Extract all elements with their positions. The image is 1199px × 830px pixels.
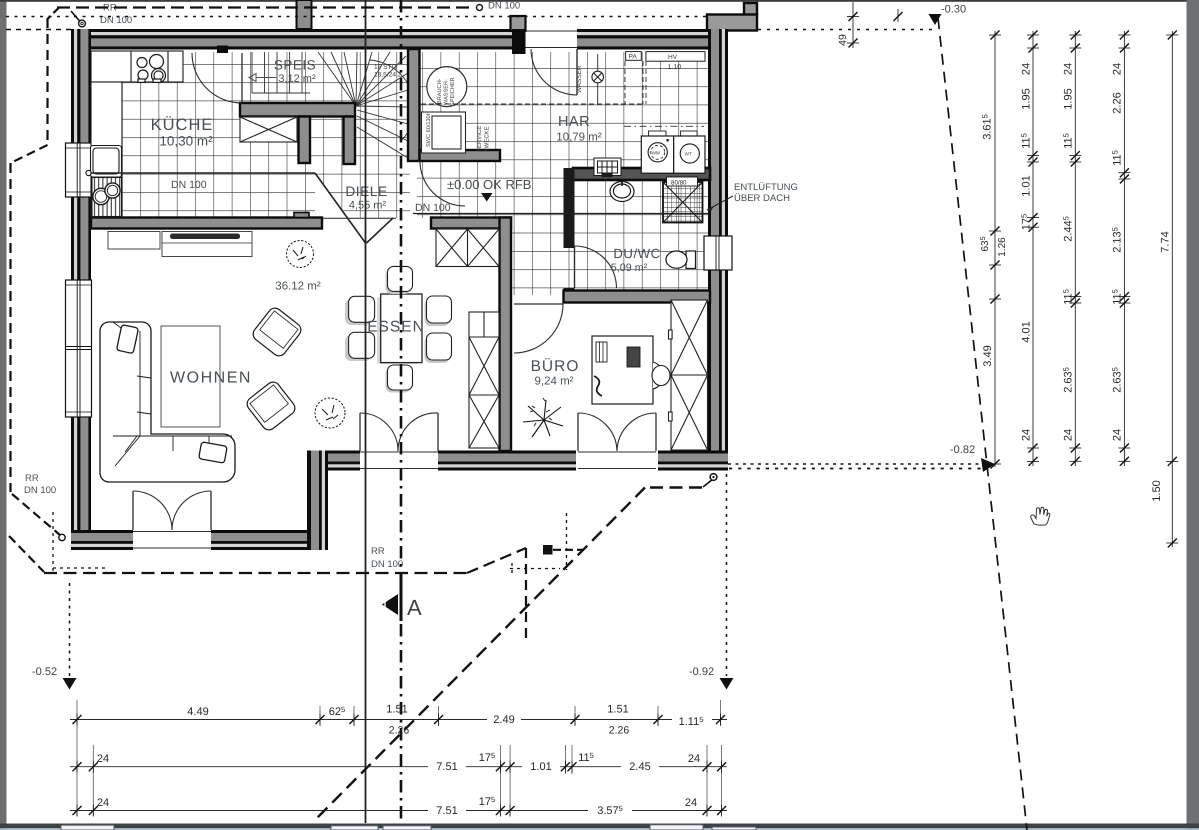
svg-text:1.50: 1.50: [1151, 480, 1163, 501]
svg-text:1.26: 1.26: [997, 237, 1008, 257]
svg-text:2.26: 2.26: [1112, 92, 1124, 113]
svg-text:1.95: 1.95: [1021, 88, 1033, 109]
svg-text:5,09 m²: 5,09 m²: [611, 262, 648, 274]
svg-text:WOHNEN: WOHNEN: [170, 370, 252, 387]
svg-text:WASSER: WASSER: [576, 65, 583, 93]
svg-text:24: 24: [1063, 429, 1075, 441]
svg-text:BÜRO: BÜRO: [531, 358, 580, 375]
svg-text:49: 49: [837, 34, 849, 46]
svg-text:24: 24: [1112, 63, 1124, 75]
svg-text:16 STG: 16 STG: [374, 64, 397, 71]
svg-text:2.26: 2.26: [609, 725, 630, 737]
svg-text:2.49: 2.49: [493, 714, 514, 726]
svg-text:3,12 m²: 3,12 m²: [278, 73, 316, 85]
svg-text:24: 24: [1063, 63, 1075, 75]
svg-text:36.12 m²: 36.12 m²: [275, 281, 321, 293]
svg-text:SWC 60/130H: SWC 60/130H: [425, 111, 432, 147]
svg-text:2.26: 2.26: [389, 725, 410, 737]
svg-text:1.51: 1.51: [386, 704, 407, 716]
svg-text:7.51: 7.51: [436, 805, 457, 817]
svg-text:WASSER-: WASSER-: [444, 79, 450, 105]
svg-text:SERVICE: SERVICE: [476, 126, 483, 152]
svg-text:DU/WC: DU/WC: [613, 246, 660, 261]
svg-text:7.51: 7.51: [436, 761, 457, 773]
svg-text:DIELE: DIELE: [345, 184, 387, 199]
svg-text:4.49: 4.49: [187, 706, 208, 718]
svg-text:KÜCHE: KÜCHE: [151, 116, 214, 134]
svg-text:ESSEN: ESSEN: [367, 319, 425, 336]
svg-text:-0.82: -0.82: [950, 444, 975, 456]
svg-text:3.49: 3.49: [982, 345, 994, 366]
svg-text:24: 24: [1021, 63, 1033, 75]
svg-text:DN 100: DN 100: [24, 485, 56, 496]
svg-text:24: 24: [685, 797, 697, 809]
svg-text:2.45: 2.45: [629, 761, 650, 773]
svg-text:10,30 m²: 10,30 m²: [159, 134, 213, 149]
svg-text:ÜBER DACH: ÜBER DACH: [734, 193, 790, 204]
svg-text:7.74: 7.74: [1160, 231, 1172, 252]
svg-text:SPEICHER: SPEICHER: [450, 77, 456, 106]
svg-text:-0.52: -0.52: [32, 666, 57, 678]
svg-text:1.01: 1.01: [530, 761, 551, 773]
svg-text:DN 100: DN 100: [371, 559, 403, 570]
svg-text:ENTLÜFTUNG: ENTLÜFTUNG: [734, 182, 798, 193]
svg-text:SPEIS: SPEIS: [274, 58, 316, 73]
svg-text:80/80: 80/80: [671, 179, 687, 186]
svg-text:DN 100: DN 100: [488, 1, 520, 12]
svg-text:18,5/24,2: 18,5/24,2: [374, 72, 402, 79]
svg-text:-0.30: -0.30: [941, 4, 966, 16]
svg-text:HV: HV: [668, 54, 678, 61]
svg-text:9,24 m²: 9,24 m²: [535, 376, 574, 388]
svg-text:RR: RR: [371, 546, 385, 557]
svg-text:24: 24: [97, 753, 109, 765]
svg-text:ZWECKE: ZWECKE: [484, 126, 491, 152]
svg-text:DN 100: DN 100: [171, 179, 207, 191]
svg-text:24: 24: [688, 753, 700, 765]
svg-text:WM: WM: [652, 151, 661, 157]
svg-text:1.51: 1.51: [607, 704, 628, 716]
svg-text:4.01: 4.01: [1021, 321, 1033, 342]
svg-text:RR: RR: [25, 473, 39, 484]
svg-text:±0.00 OK RFB: ±0.00 OK RFB: [447, 177, 531, 192]
svg-text:HAR: HAR: [558, 114, 590, 130]
svg-text:1.95: 1.95: [1063, 88, 1075, 109]
svg-text:1.01: 1.01: [1021, 175, 1033, 196]
svg-text:10,79 m²: 10,79 m²: [556, 132, 602, 144]
svg-text:WT: WT: [685, 152, 693, 158]
svg-text:PA: PA: [629, 54, 638, 61]
svg-text:24: 24: [1112, 429, 1124, 441]
svg-text:A: A: [407, 595, 422, 620]
svg-text:DN 100: DN 100: [415, 202, 451, 214]
svg-text:4,55 m²: 4,55 m²: [349, 200, 387, 212]
svg-text:1.10: 1.10: [668, 64, 682, 71]
svg-text:-0.92: -0.92: [689, 666, 714, 678]
svg-text:24: 24: [1021, 429, 1033, 441]
svg-text:BRAUCH-: BRAUCH-: [437, 78, 443, 104]
svg-text:24: 24: [97, 797, 109, 809]
